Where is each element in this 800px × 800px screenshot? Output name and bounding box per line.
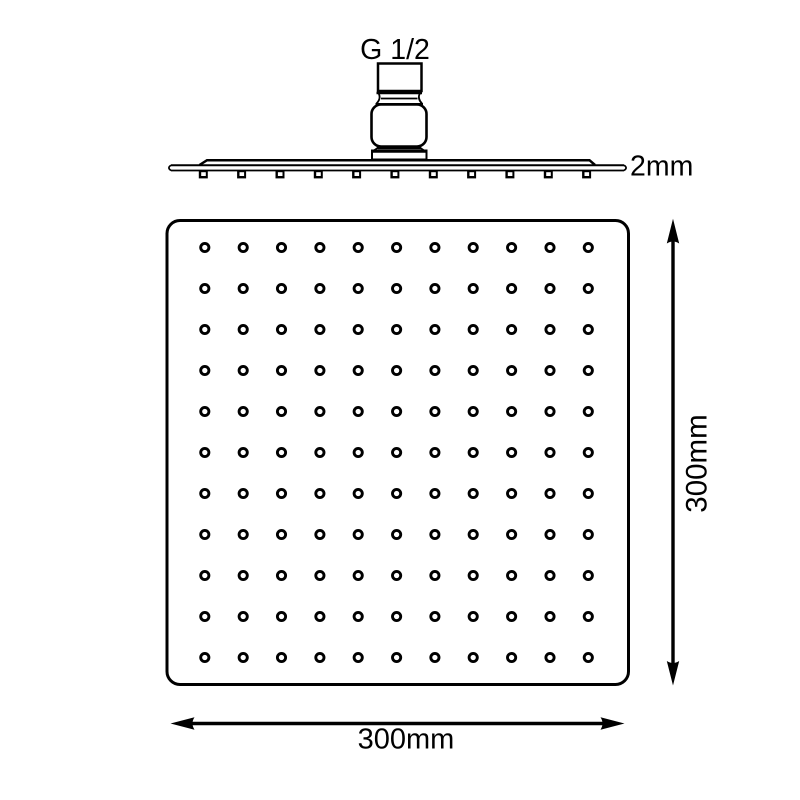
svg-text:300mm: 300mm: [681, 414, 714, 512]
svg-text:G 1/2: G 1/2: [360, 34, 430, 66]
svg-text:2mm: 2mm: [630, 151, 693, 183]
svg-text:300mm: 300mm: [358, 724, 455, 756]
